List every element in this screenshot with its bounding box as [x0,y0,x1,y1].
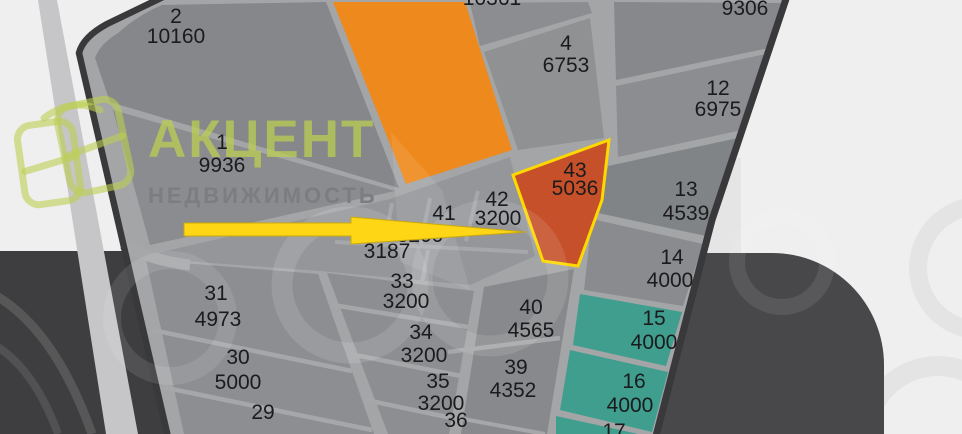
svg-text:39: 39 [504,356,527,379]
svg-text:30: 30 [226,346,249,369]
svg-text:5000: 5000 [215,371,262,394]
svg-text:4: 4 [560,32,572,55]
svg-text:НЕДВИЖИМОСТЬ: НЕДВИЖИМОСТЬ [148,183,378,208]
svg-text:10361: 10361 [463,0,521,10]
svg-text:АКЦЕНТ: АКЦЕНТ [148,110,375,169]
svg-text:36: 36 [444,409,467,432]
svg-text:6753: 6753 [543,54,590,77]
svg-text:17: 17 [602,420,625,434]
svg-text:4352: 4352 [490,379,537,402]
svg-text:29: 29 [251,401,274,424]
svg-text:9306: 9306 [722,0,769,20]
svg-text:3187: 3187 [364,240,411,263]
svg-text:4565: 4565 [508,319,555,342]
svg-text:41: 41 [432,202,455,225]
svg-text:10160: 10160 [147,25,205,48]
svg-text:15: 15 [642,307,665,330]
svg-text:4973: 4973 [195,308,242,331]
svg-text:4539: 4539 [663,202,710,225]
svg-text:4000: 4000 [631,331,678,354]
svg-text:16: 16 [622,370,645,393]
svg-text:3200: 3200 [475,207,522,230]
svg-text:5036: 5036 [552,177,599,200]
svg-text:34: 34 [409,321,433,344]
svg-text:40: 40 [519,296,542,319]
svg-text:3200: 3200 [383,290,430,313]
svg-text:13: 13 [674,178,697,201]
svg-text:4000: 4000 [647,269,694,292]
svg-text:14: 14 [660,246,684,269]
svg-text:31: 31 [204,282,227,305]
svg-text:12: 12 [706,77,729,100]
svg-text:1: 1 [216,131,228,154]
svg-text:3200: 3200 [401,344,448,367]
svg-text:6975: 6975 [695,98,742,121]
svg-text:9936: 9936 [199,154,246,177]
svg-text:4000: 4000 [607,394,654,417]
svg-text:35: 35 [426,370,449,393]
